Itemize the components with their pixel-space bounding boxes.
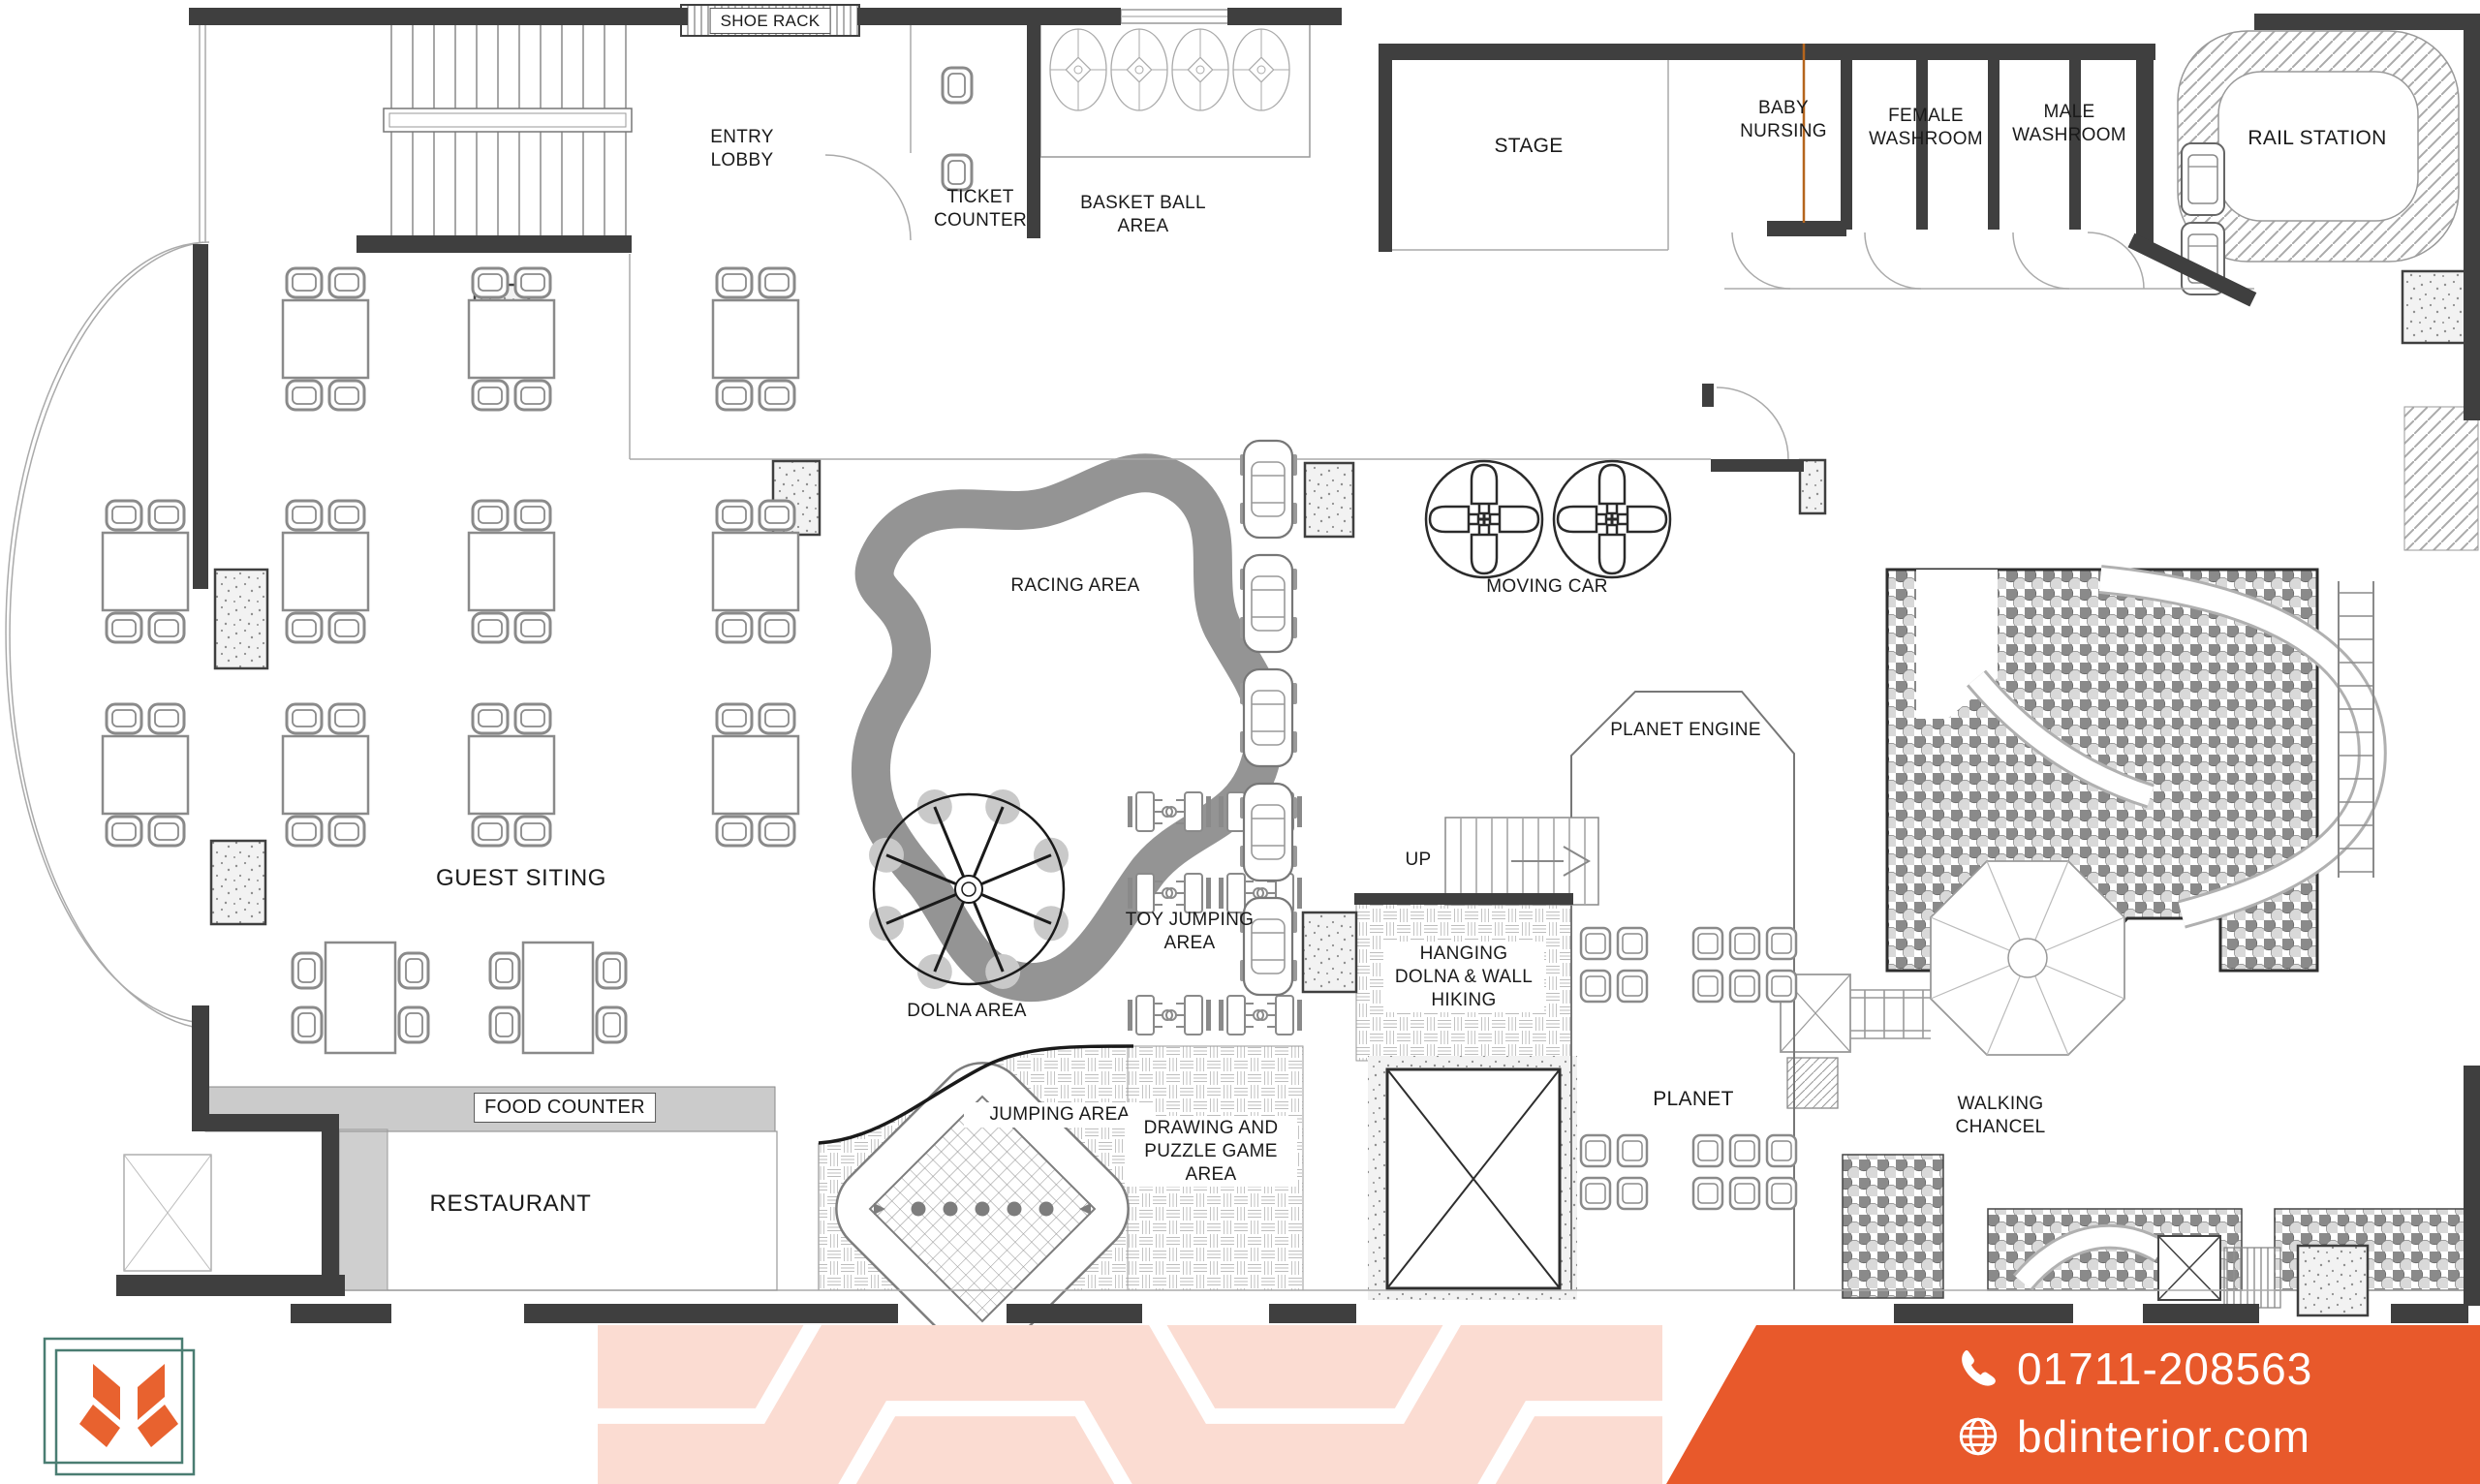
- label-stage: STAGE: [1461, 134, 1596, 159]
- label-planet: PLANET: [1616, 1087, 1771, 1112]
- phone-row: 01711-208563: [1957, 1343, 2312, 1395]
- label-drawing-puzzle: DRAWING AND PUZZLE GAME AREA: [1125, 1116, 1297, 1187]
- label-baby-nursing: BABY NURSING: [1739, 97, 1828, 143]
- label-guest-siting: GUEST SITING: [366, 864, 676, 893]
- label-up: UP: [1389, 849, 1447, 872]
- hexagon-pattern: [598, 1325, 1662, 1484]
- footer-contact-panel: 01711-208563 bdinterior.com: [1666, 1325, 2480, 1484]
- planet-hall: [1571, 692, 1796, 1290]
- void-x-box: [1368, 1056, 1577, 1300]
- label-racing-area: RACING AREA: [975, 573, 1176, 599]
- label-toy-jumping-area: TOY JUMPING AREA: [1117, 909, 1262, 955]
- rail-station-track: [2178, 31, 2459, 294]
- footer: BD INTERIOR Caring while Creating ISO 90…: [0, 1325, 2480, 1484]
- label-rail-station: RAIL STATION: [2211, 126, 2424, 151]
- label-entry-lobby: ENTRY LOBBY: [700, 126, 784, 172]
- label-food-counter: FOOD COUNTER: [474, 1093, 656, 1123]
- label-ticket-counter: TICKET COUNTER: [927, 186, 1034, 232]
- label-moving-car: MOVING CAR: [1450, 575, 1644, 599]
- label-dolna-area: DOLNA AREA: [870, 1000, 1064, 1023]
- label-hanging-dolna: HANGING DOLNA & WALL HIKING: [1383, 942, 1544, 1012]
- up-stairs: [1445, 818, 1598, 905]
- website-row: bdinterior.com: [1957, 1410, 2310, 1463]
- moving-car-carousels: [1426, 461, 1670, 577]
- bd-interior-logo: [39, 1329, 271, 1480]
- label-male-washroom: MALE WASHROOM: [2009, 101, 2129, 147]
- label-basketball-area: BASKET BALL AREA: [1070, 192, 1216, 238]
- entry-stairs: [384, 25, 632, 235]
- label-planet-engine: PLANET ENGINE: [1569, 719, 1802, 742]
- floor-plan: SHOE RACK ENTRY LOBBY TICKET COUNTER BAS…: [0, 0, 2480, 1325]
- website-url: bdinterior.com: [2017, 1410, 2310, 1463]
- basketball-machines: [1040, 14, 1310, 157]
- globe-icon: [1957, 1415, 1999, 1458]
- phone-icon: [1957, 1347, 1999, 1390]
- label-female-washroom: FEMALE WASHROOM: [1866, 105, 1986, 151]
- label-walking-chancel: WALKING CHANCEL: [1942, 1093, 2059, 1139]
- floor-plan-page: SHOE RACK ENTRY LOBBY TICKET COUNTER BAS…: [0, 0, 2480, 1484]
- bridge: [1850, 990, 1931, 1038]
- footer-pattern-panel: [598, 1325, 1662, 1484]
- label-restaurant: RESTAURANT: [365, 1190, 656, 1219]
- label-shoe-rack: SHOE RACK: [710, 8, 831, 34]
- phone-number: 01711-208563: [2017, 1343, 2312, 1395]
- logo-mark: [79, 1364, 178, 1447]
